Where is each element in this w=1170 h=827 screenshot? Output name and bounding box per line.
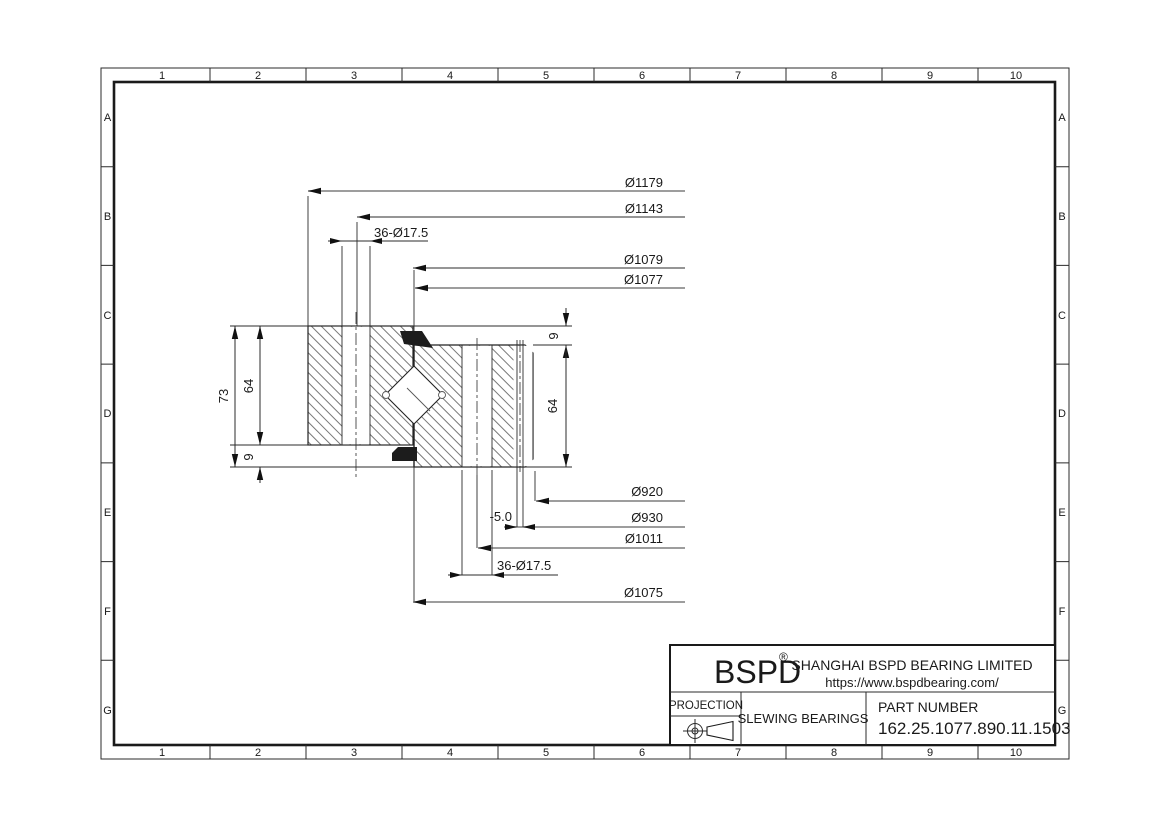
product-type: SLEWING BEARINGS bbox=[738, 711, 869, 726]
grid-label: 2 bbox=[255, 70, 261, 82]
lower-seal bbox=[392, 447, 417, 461]
dim-label: Ø1077 bbox=[624, 272, 663, 287]
dim-lower-bolt-holes: 36-Ø17.5 bbox=[448, 470, 558, 578]
engineering-drawing: 1 2 3 4 5 6 7 8 9 10 1 2 3 4 5 6 7 8 9 1… bbox=[0, 0, 1170, 827]
grid-column-labels-bottom: 1 2 3 4 5 6 7 8 9 10 bbox=[159, 747, 1022, 759]
grid-label: 10 bbox=[1010, 747, 1022, 759]
dim-upper-ring-height: 64 bbox=[241, 326, 263, 445]
roller-spacer-dot bbox=[439, 392, 446, 399]
grid-label: 1 bbox=[159, 70, 165, 82]
dim-overall-height: 73 bbox=[216, 326, 238, 467]
grid-label: 9 bbox=[927, 70, 933, 82]
dim-label: 64 bbox=[241, 379, 256, 393]
dim-label: 36-Ø17.5 bbox=[497, 558, 551, 573]
dim-outer-diameter: Ø1179 bbox=[308, 175, 685, 326]
grid-label: G bbox=[103, 705, 112, 717]
grid-label: 3 bbox=[351, 70, 357, 82]
grid-label: 5 bbox=[543, 747, 549, 759]
dim-label: 73 bbox=[216, 389, 231, 403]
grid-label: B bbox=[104, 211, 111, 223]
company-name: SHANGHAI BSPD BEARING LIMITED bbox=[791, 657, 1032, 673]
dim-label: -5.0 bbox=[490, 509, 512, 524]
grid-label: D bbox=[104, 408, 112, 420]
dim-label: 36-Ø17.5 bbox=[374, 225, 428, 240]
dim-label: 64 bbox=[545, 399, 560, 413]
dim-label: Ø1075 bbox=[624, 585, 663, 600]
grid-label: 9 bbox=[927, 747, 933, 759]
grid-label: G bbox=[1058, 705, 1067, 717]
grid-label: F bbox=[1059, 606, 1066, 618]
grid-label: C bbox=[1058, 310, 1066, 322]
dim-label: 9 bbox=[546, 332, 561, 339]
grid-row-labels-right: A B C D E F G bbox=[1058, 112, 1067, 717]
roller-spacer-dot bbox=[383, 392, 390, 399]
registered-trademark: ® bbox=[779, 650, 788, 664]
grid-row-labels-left: A B C D E F G bbox=[103, 112, 112, 717]
dim-lower-ring-outer: Ø1077 bbox=[415, 272, 685, 291]
grid-column-labels-top: 1 2 3 4 5 6 7 8 9 10 bbox=[159, 70, 1022, 82]
grid-label: 10 bbox=[1010, 70, 1022, 82]
grid-label: 1 bbox=[159, 747, 165, 759]
dim-label: Ø1143 bbox=[625, 201, 663, 216]
dim-label: Ø930 bbox=[631, 510, 663, 525]
grid-label: 6 bbox=[639, 747, 645, 759]
grid-label: D bbox=[1058, 408, 1066, 420]
dim-bottom-step-left: 9 bbox=[241, 453, 263, 483]
grid-label: F bbox=[104, 606, 111, 618]
dim-label: Ø1011 bbox=[625, 531, 663, 546]
dim-lower-ring-height: 64 bbox=[545, 345, 569, 467]
dim-label: Ø920 bbox=[631, 484, 663, 499]
grid-label: 4 bbox=[447, 70, 453, 82]
bearing-cross-section bbox=[230, 270, 572, 602]
grid-label: 6 bbox=[639, 70, 645, 82]
grid-label: 7 bbox=[735, 70, 741, 82]
grid-label: 2 bbox=[255, 747, 261, 759]
grid-label: 3 bbox=[351, 747, 357, 759]
dim-upper-bolt-holes: 36-Ø17.5 bbox=[328, 225, 428, 326]
brand-logo: BSPD bbox=[714, 654, 801, 690]
dim-label: 9 bbox=[241, 453, 256, 460]
grid-label: 4 bbox=[447, 747, 453, 759]
grid-label: 5 bbox=[543, 70, 549, 82]
part-number-value: 162.25.1077.890.11.1503 bbox=[878, 719, 1071, 738]
dim-label: Ø1179 bbox=[625, 175, 663, 190]
grid-label: 7 bbox=[735, 747, 741, 759]
grid-label: A bbox=[104, 112, 112, 124]
dim-label: Ø1079 bbox=[624, 252, 663, 267]
grid-label: B bbox=[1058, 211, 1065, 223]
grid-label: C bbox=[104, 310, 112, 322]
part-number-label: PART NUMBER bbox=[878, 699, 978, 715]
dim-lower-ring-outer-bottom: Ø1075 bbox=[413, 585, 685, 605]
grid-label: 8 bbox=[831, 70, 837, 82]
company-website: https://www.bspdbearing.com/ bbox=[825, 675, 999, 690]
grid-label: 8 bbox=[831, 747, 837, 759]
title-block: BSPD ® SHANGHAI BSPD BEARING LIMITED htt… bbox=[669, 645, 1071, 745]
projection-label: PROJECTION bbox=[669, 700, 743, 712]
grid-label: E bbox=[1058, 507, 1065, 519]
grid-label: A bbox=[1058, 112, 1066, 124]
dim-upper-ring-bore: Ø1079 bbox=[413, 252, 685, 271]
dim-bore-diameter: Ø920 bbox=[535, 471, 685, 504]
grid-label: E bbox=[104, 507, 111, 519]
